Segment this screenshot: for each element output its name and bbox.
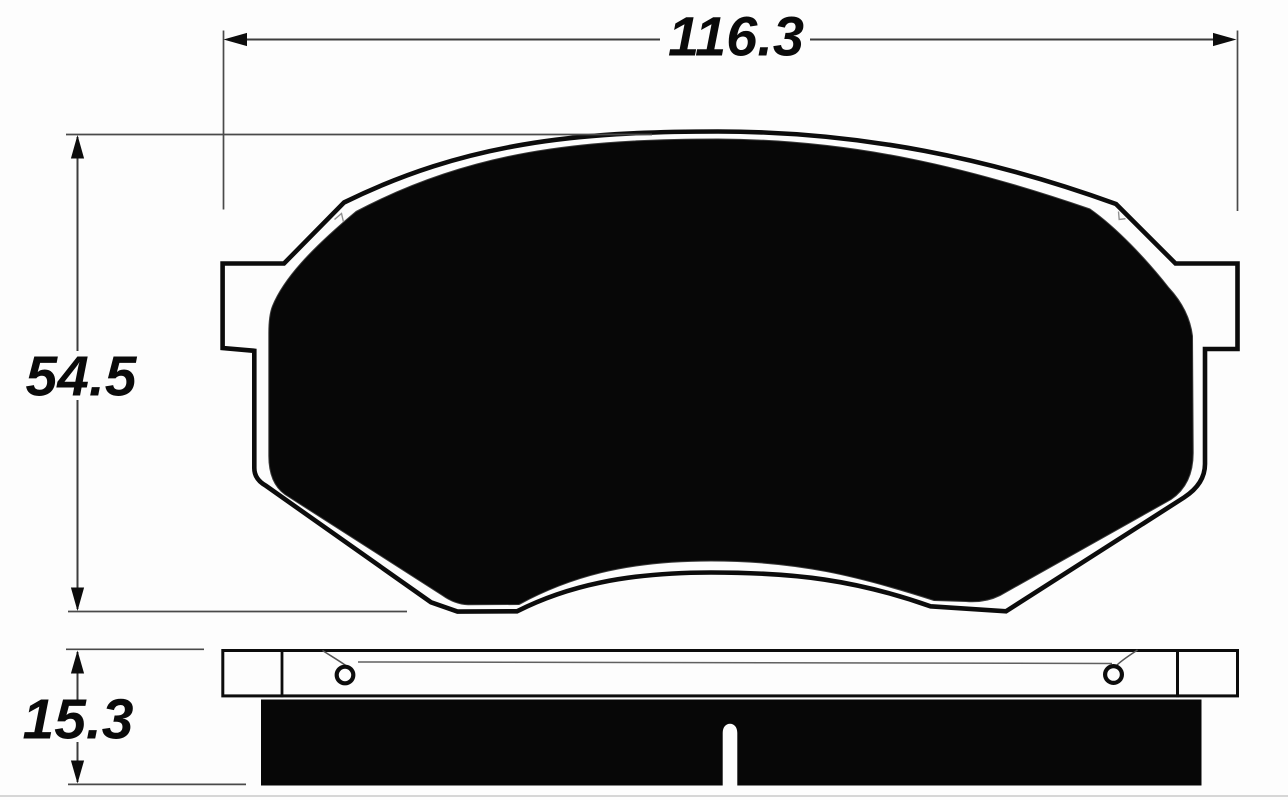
svg-text:15.3: 15.3 [23, 688, 134, 752]
svg-text:54.5: 54.5 [26, 345, 138, 409]
svg-text:116.3: 116.3 [668, 5, 804, 68]
